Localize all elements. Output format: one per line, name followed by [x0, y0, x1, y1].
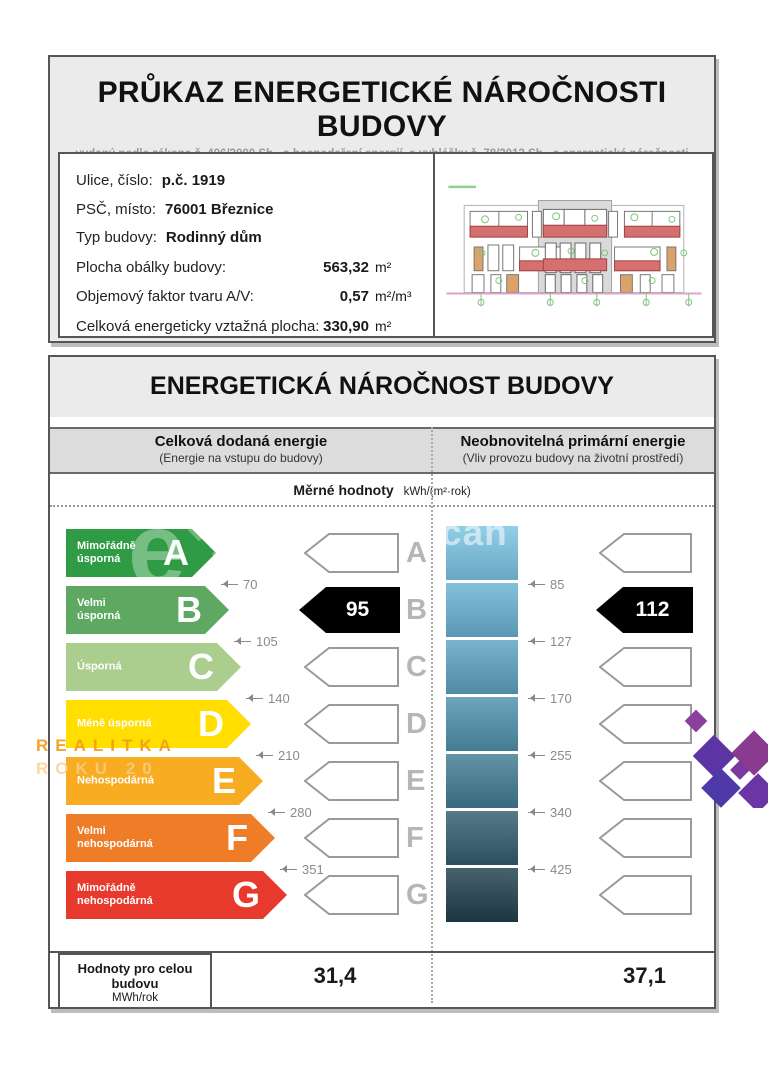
- primary-energy-value-arrow: 112: [596, 587, 693, 633]
- indicator-arrow-left-F: [304, 818, 399, 858]
- total-primary-energy-value: 37,1: [442, 963, 666, 989]
- info-row-city: PSČ, místo: 76001 Březnice: [76, 196, 433, 225]
- indicator-letter-B: B: [406, 594, 427, 627]
- rating-band-letter: B: [176, 589, 202, 631]
- threshold-right-85: 85: [528, 578, 564, 590]
- indicator-arrow-right-A: [599, 533, 692, 573]
- units-row: Měrné hodnoty kWh/(m²·rok): [50, 474, 714, 507]
- column-header-delivered-energy: Celková dodaná energie (Energie na vstup…: [50, 429, 432, 472]
- threshold-right-340: 340: [528, 806, 572, 818]
- threshold-left-280: 280: [268, 806, 312, 818]
- energy-rating-box: ENERGETICKÁ NÁROČNOST BUDOVY Celková dod…: [48, 355, 716, 1009]
- field-value: 0,57: [340, 283, 369, 312]
- indicator-arrow-left-A: [304, 533, 399, 573]
- rating-band-label: Mimořádněúsporná: [77, 540, 136, 566]
- field-value: Rodinný dům: [166, 224, 262, 253]
- column-headers: Celková dodaná energie (Energie na vstup…: [50, 427, 714, 474]
- indicator-letter-D: D: [406, 708, 427, 741]
- field-label: Plocha obálky budovy:: [76, 254, 226, 283]
- indicator-arrow-left-D: [304, 704, 399, 744]
- info-row-reference-area: Celková energeticky vztažná plocha: 330,…: [76, 312, 433, 342]
- indicator-arrow-right-E: [599, 761, 692, 801]
- indicator-letter-F: F: [406, 822, 424, 855]
- tick-arrow-icon: [528, 812, 545, 813]
- delivered-energy-value-arrow: 95: [299, 587, 400, 633]
- primary-energy-value: 112: [596, 587, 693, 633]
- indicator-arrow-left-G: [304, 875, 399, 915]
- threshold-left-210: 210: [256, 749, 300, 761]
- rating-band-letter: G: [232, 874, 260, 916]
- info-row-shape-factor: Objemový faktor tvaru A/V: 0,57 m²/m³: [76, 282, 433, 312]
- building-info-panel: Ulice, číslo: p.č. 1919 PSČ, místo: 7600…: [58, 152, 714, 338]
- rating-band-label: Velminehospodárná: [77, 825, 153, 851]
- rating-band-letter: F: [226, 817, 248, 859]
- totals-label: Hodnoty pro celou budovu: [60, 961, 210, 991]
- field-label: Objemový faktor tvaru A/V:: [76, 283, 254, 312]
- indicator-arrow-right-C: [599, 647, 692, 687]
- primary-energy-block-E: [446, 754, 518, 808]
- threshold-left-140: 140: [246, 692, 290, 704]
- tick-arrow-icon: [234, 641, 251, 642]
- field-unit: m²: [375, 253, 433, 282]
- units-value: kWh/(m²·rok): [404, 486, 471, 498]
- rating-band-label: Velmiúsporná: [77, 597, 120, 623]
- rating-band-letter: A: [163, 532, 189, 574]
- totals-unit: MWh/rok: [60, 992, 210, 1004]
- rating-band-A: Mimořádněúsporná A: [66, 529, 216, 577]
- column-divider: [431, 427, 433, 1003]
- building-elevation-drawing: [435, 154, 712, 336]
- field-value: 563,32: [323, 254, 369, 283]
- indicator-letter-C: C: [406, 651, 427, 684]
- field-label: PSČ, místo:: [76, 196, 156, 225]
- delivered-energy-value: 95: [299, 587, 400, 633]
- threshold-left-105: 105: [234, 635, 278, 647]
- primary-energy-block-G: [446, 868, 518, 922]
- threshold-right-170: 170: [528, 692, 572, 704]
- column-header-primary-energy: Neobnovitelná primární energie (Vliv pro…: [432, 429, 714, 472]
- rating-band-label: Mimořádněnehospodárná: [77, 882, 153, 908]
- rating-title: ENERGETICKÁ NÁROČNOST BUDOVY: [50, 357, 714, 401]
- primary-energy-block-B: [446, 583, 518, 637]
- info-row-envelope-area: Plocha obálky budovy: 563,32 m²: [76, 253, 433, 283]
- rating-band-label: Méně úsporná: [77, 717, 152, 730]
- rating-band-letter: D: [198, 703, 224, 745]
- totals-row: Hodnoty pro celou budovu MWh/rok 31,4 37…: [50, 951, 714, 1007]
- info-row-street: Ulice, číslo: p.č. 1919: [76, 167, 433, 196]
- threshold-right-127: 127: [528, 635, 572, 647]
- building-info-fields: Ulice, číslo: p.č. 1919 PSČ, místo: 7600…: [60, 154, 435, 336]
- tick-arrow-icon: [246, 698, 263, 699]
- indicator-arrow-right-F: [599, 818, 692, 858]
- page: { "header": { "title": "PRŮKAZ ENERGETIC…: [0, 0, 768, 1087]
- tick-arrow-icon: [268, 812, 285, 813]
- total-delivered-energy-value: 31,4: [240, 963, 430, 989]
- tick-arrow-icon: [528, 584, 545, 585]
- rating-band-letter: E: [212, 760, 236, 802]
- indicator-arrow-left-C: [304, 647, 399, 687]
- building-drawing-panel: [435, 154, 712, 336]
- tick-arrow-icon: [528, 755, 545, 756]
- tick-arrow-icon: [528, 641, 545, 642]
- threshold-right-425: 425: [528, 863, 572, 875]
- tick-arrow-icon: [256, 755, 273, 756]
- rating-band-B: Velmiúsporná B: [66, 586, 229, 634]
- threshold-left-351: 351: [280, 863, 324, 875]
- rating-band-E: Nehospodárná E: [66, 757, 263, 805]
- indicator-letter-A: A: [406, 537, 427, 570]
- totals-label-cell: Hodnoty pro celou budovu MWh/rok: [58, 953, 212, 1009]
- rating-band-label: Nehospodárná: [77, 774, 154, 787]
- info-row-building-type: Typ budovy: Rodinný dům: [76, 224, 433, 253]
- primary-energy-block-C: [446, 640, 518, 694]
- rating-band-D: Méně úsporná D: [66, 700, 251, 748]
- field-label: Typ budovy:: [76, 224, 157, 253]
- threshold-left-70: 70: [221, 578, 257, 590]
- indicator-letter-G: G: [406, 879, 429, 912]
- indicator-arrow-left-E: [304, 761, 399, 801]
- tick-arrow-icon: [528, 698, 545, 699]
- field-unit: m²: [375, 312, 433, 341]
- primary-energy-block-A: [446, 526, 518, 580]
- field-label: Celková energeticky vztažná plocha:: [76, 313, 319, 342]
- rating-band-C: Úsporná C: [66, 643, 241, 691]
- rating-band-letter: C: [188, 646, 214, 688]
- rating-header: ENERGETICKÁ NÁROČNOST BUDOVY: [50, 357, 714, 417]
- field-label: Ulice, číslo:: [76, 167, 153, 196]
- scale-area: Mimořádněúsporná AA7085 Velmiúsporná B 9…: [50, 507, 714, 949]
- rating-band-label: Úsporná: [77, 660, 122, 673]
- field-value: p.č. 1919: [162, 167, 225, 196]
- threshold-right-255: 255: [528, 749, 572, 761]
- units-label: Měrné hodnoty: [293, 482, 393, 498]
- certificate-header-box: PRŮKAZ ENERGETICKÉ NÁROČNOSTI BUDOVY vyd…: [48, 55, 716, 343]
- field-value: 76001 Březnice: [165, 196, 273, 225]
- field-unit: m²/m³: [375, 282, 433, 311]
- rating-band-F: Velminehospodárná F: [66, 814, 275, 862]
- indicator-letter-E: E: [406, 765, 425, 798]
- tick-arrow-icon: [528, 869, 545, 870]
- field-value: 330,90: [323, 313, 369, 342]
- tick-arrow-icon: [221, 584, 238, 585]
- indicator-arrow-right-G: [599, 875, 692, 915]
- primary-energy-block-F: [446, 811, 518, 865]
- tick-arrow-icon: [280, 869, 297, 870]
- certificate-title: PRŮKAZ ENERGETICKÉ NÁROČNOSTI BUDOVY: [50, 57, 714, 144]
- rating-band-G: Mimořádněnehospodárná G: [66, 871, 287, 919]
- indicator-arrow-right-D: [599, 704, 692, 744]
- primary-energy-block-D: [446, 697, 518, 751]
